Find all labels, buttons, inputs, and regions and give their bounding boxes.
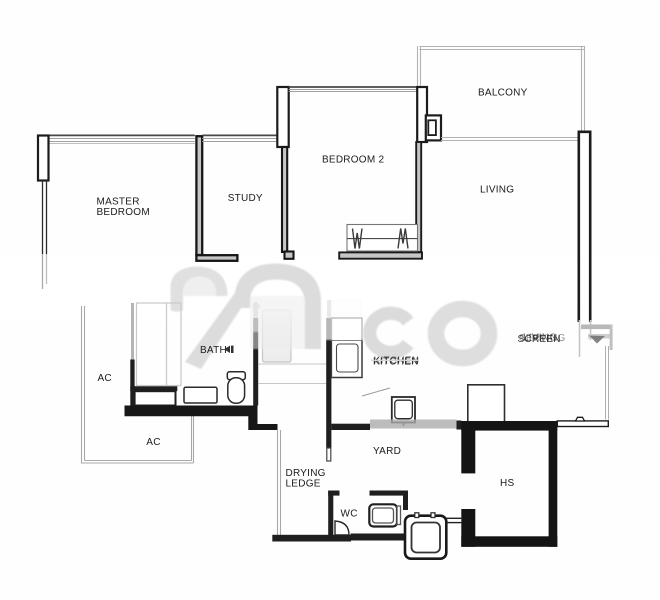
svg-text:STUDY: STUDY [228, 193, 263, 204]
svg-text:KITCHEN: KITCHEN [373, 356, 419, 367]
svg-text:YARD: YARD [373, 446, 401, 457]
svg-text:AC: AC [98, 373, 112, 384]
svg-text:HS: HS [500, 478, 514, 489]
svg-text:BEDROOM: BEDROOM [97, 207, 150, 218]
svg-text:WC: WC [341, 509, 358, 520]
svg-text:DRYING: DRYING [286, 468, 326, 479]
svg-text:BEDROOM 2: BEDROOM 2 [322, 155, 384, 166]
svg-text:MASTER: MASTER [97, 197, 140, 208]
svg-text:SERVING: SERVING [519, 333, 566, 344]
svg-text:LEDGE: LEDGE [286, 479, 321, 490]
svg-text:AC: AC [146, 437, 160, 448]
svg-text:BALCONY: BALCONY [478, 88, 528, 99]
svg-text:BATH: BATH [200, 345, 227, 356]
svg-text:LIVING: LIVING [480, 185, 514, 196]
